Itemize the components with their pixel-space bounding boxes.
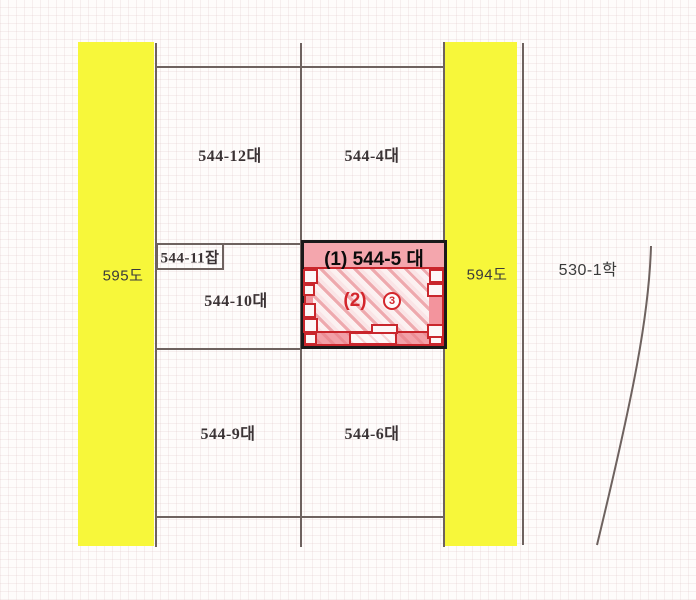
cadastral-map: (1) 544-5 대 (2) 3 544-12대 544-4대 544-11잡… [0, 0, 696, 600]
boundary-vline-left [155, 43, 157, 547]
boundary-hline-top [156, 66, 445, 68]
building-notch [303, 269, 318, 284]
building-notch [303, 284, 315, 296]
road-label-594: 594도 [467, 264, 508, 285]
parcel-label-544-6: 544-6대 [344, 420, 399, 444]
boundary-hline-lower [156, 348, 302, 350]
parcel-label-544-12: 544-12대 [198, 142, 262, 166]
building-notch [303, 318, 318, 333]
parcel-label-544-11: 544-11잡 [161, 247, 220, 268]
building-notch [429, 336, 443, 345]
building-notch [304, 333, 317, 345]
boundary-hline-bottom [156, 516, 445, 518]
building-hatch-area [313, 269, 429, 331]
highlighted-parcel-title: (1) 544-5 대 [301, 244, 447, 271]
parcel-label-544-4: 544-4대 [344, 142, 399, 166]
road-strip-594 [444, 42, 517, 546]
building-unit-label: (2) [343, 290, 366, 312]
parcel-label-544-9: 544-9대 [200, 420, 255, 444]
road-strip-595 [78, 42, 154, 546]
parcel-label-544-10: 544-10대 [204, 287, 268, 311]
road-label-595: 595도 [103, 265, 144, 286]
building-entrance-bump [371, 324, 398, 334]
circled-3-badge: 3 [383, 292, 401, 310]
boundary-vline-outer-right [522, 43, 524, 545]
building-notch [427, 283, 444, 297]
building-notch [303, 303, 316, 318]
parcel-label-530-1: 530-1학 [559, 256, 618, 280]
building-notch [429, 269, 444, 283]
